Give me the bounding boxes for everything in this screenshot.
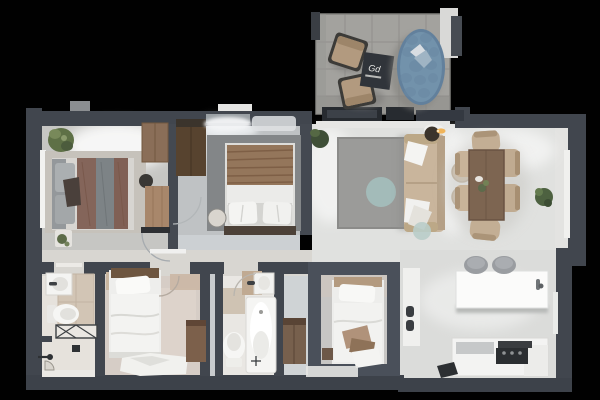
svg-text:Gd: Gd (368, 63, 382, 75)
